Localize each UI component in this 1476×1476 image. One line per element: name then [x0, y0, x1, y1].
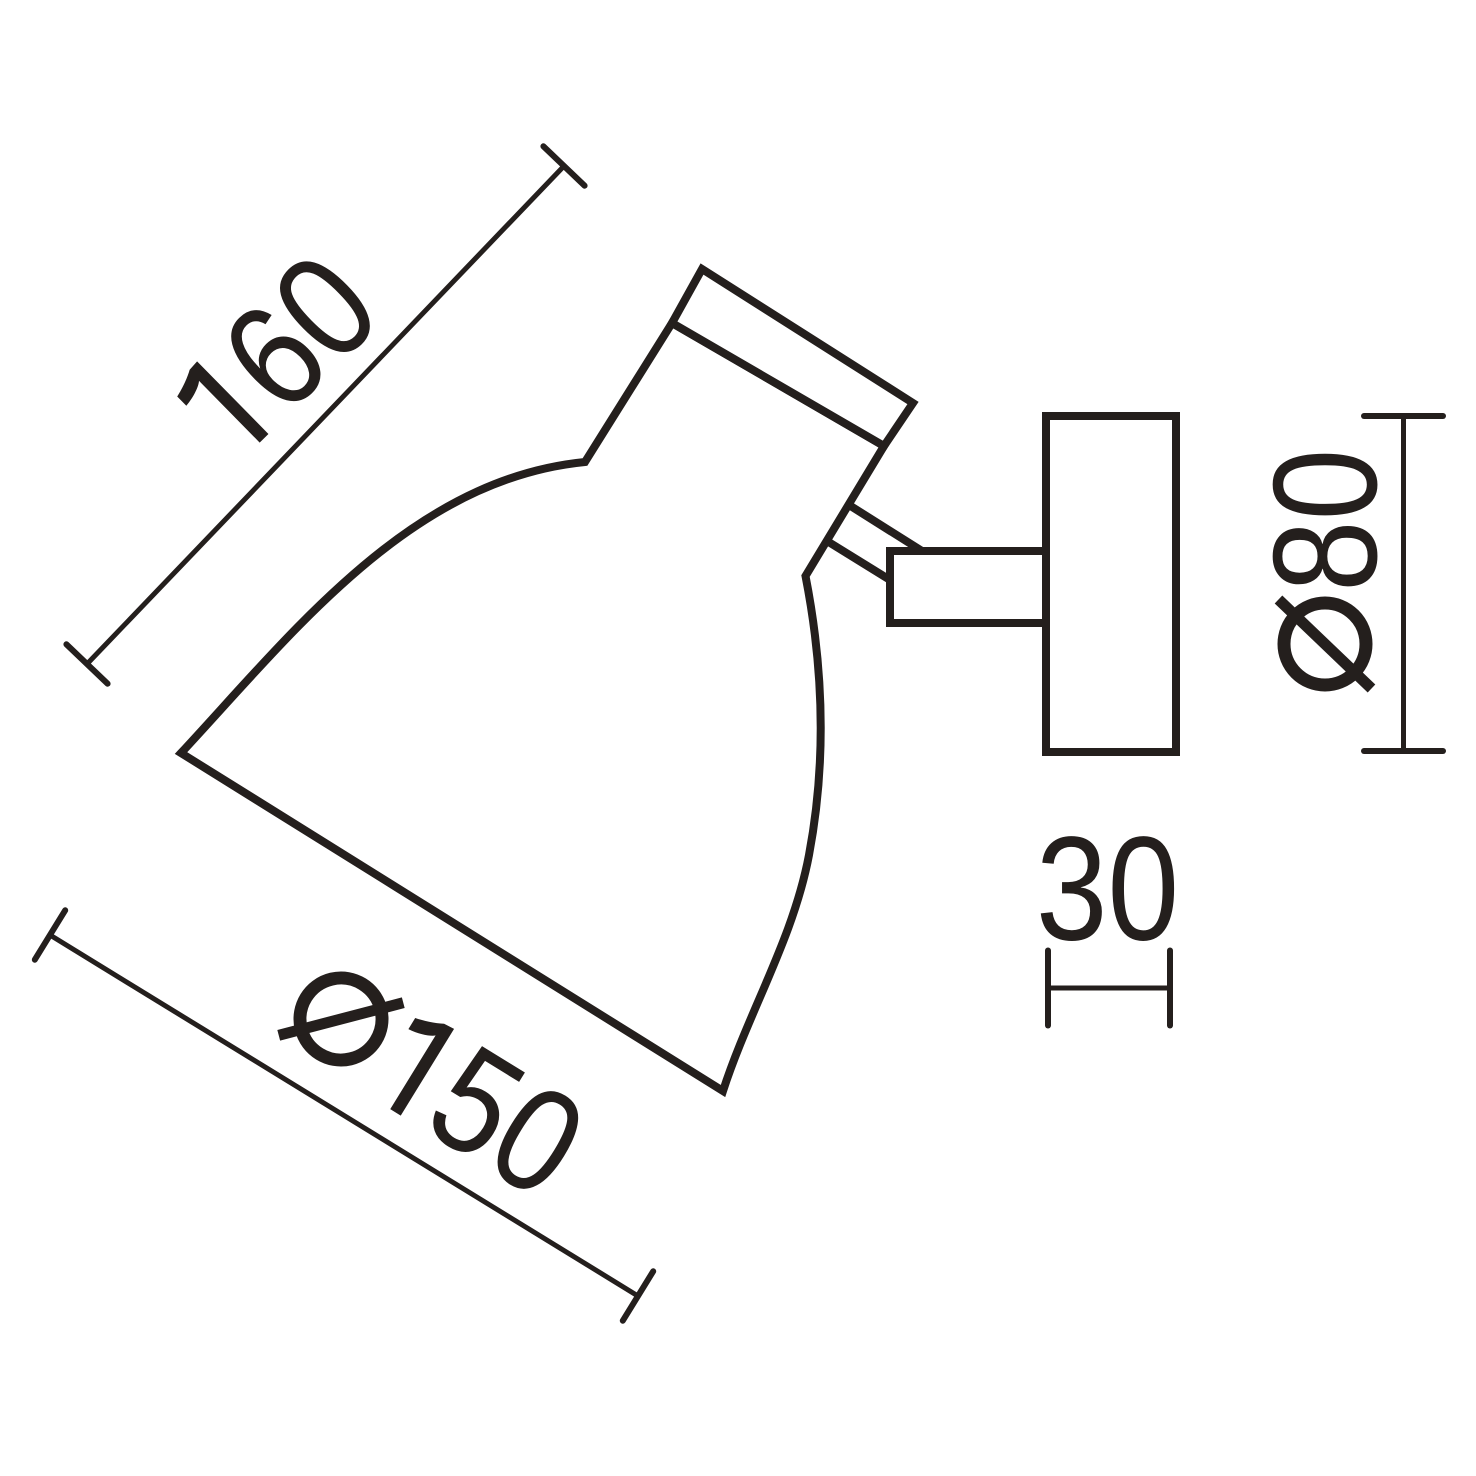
svg-text:60: 60	[191, 223, 409, 441]
svg-text:30: 30	[1036, 806, 1179, 971]
svg-text:80: 80	[1243, 449, 1408, 592]
